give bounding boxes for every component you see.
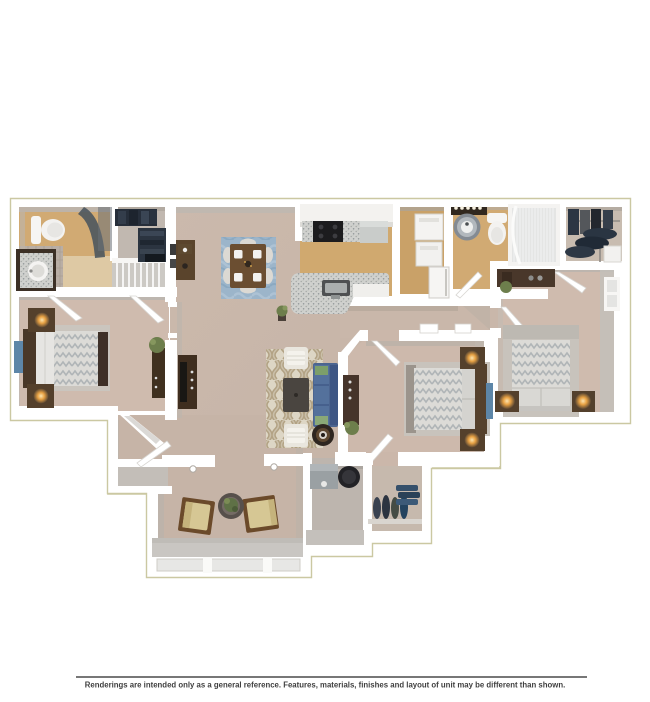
svg-text:Renderings are intended only a: Renderings are intended only as a genera… xyxy=(85,681,566,690)
